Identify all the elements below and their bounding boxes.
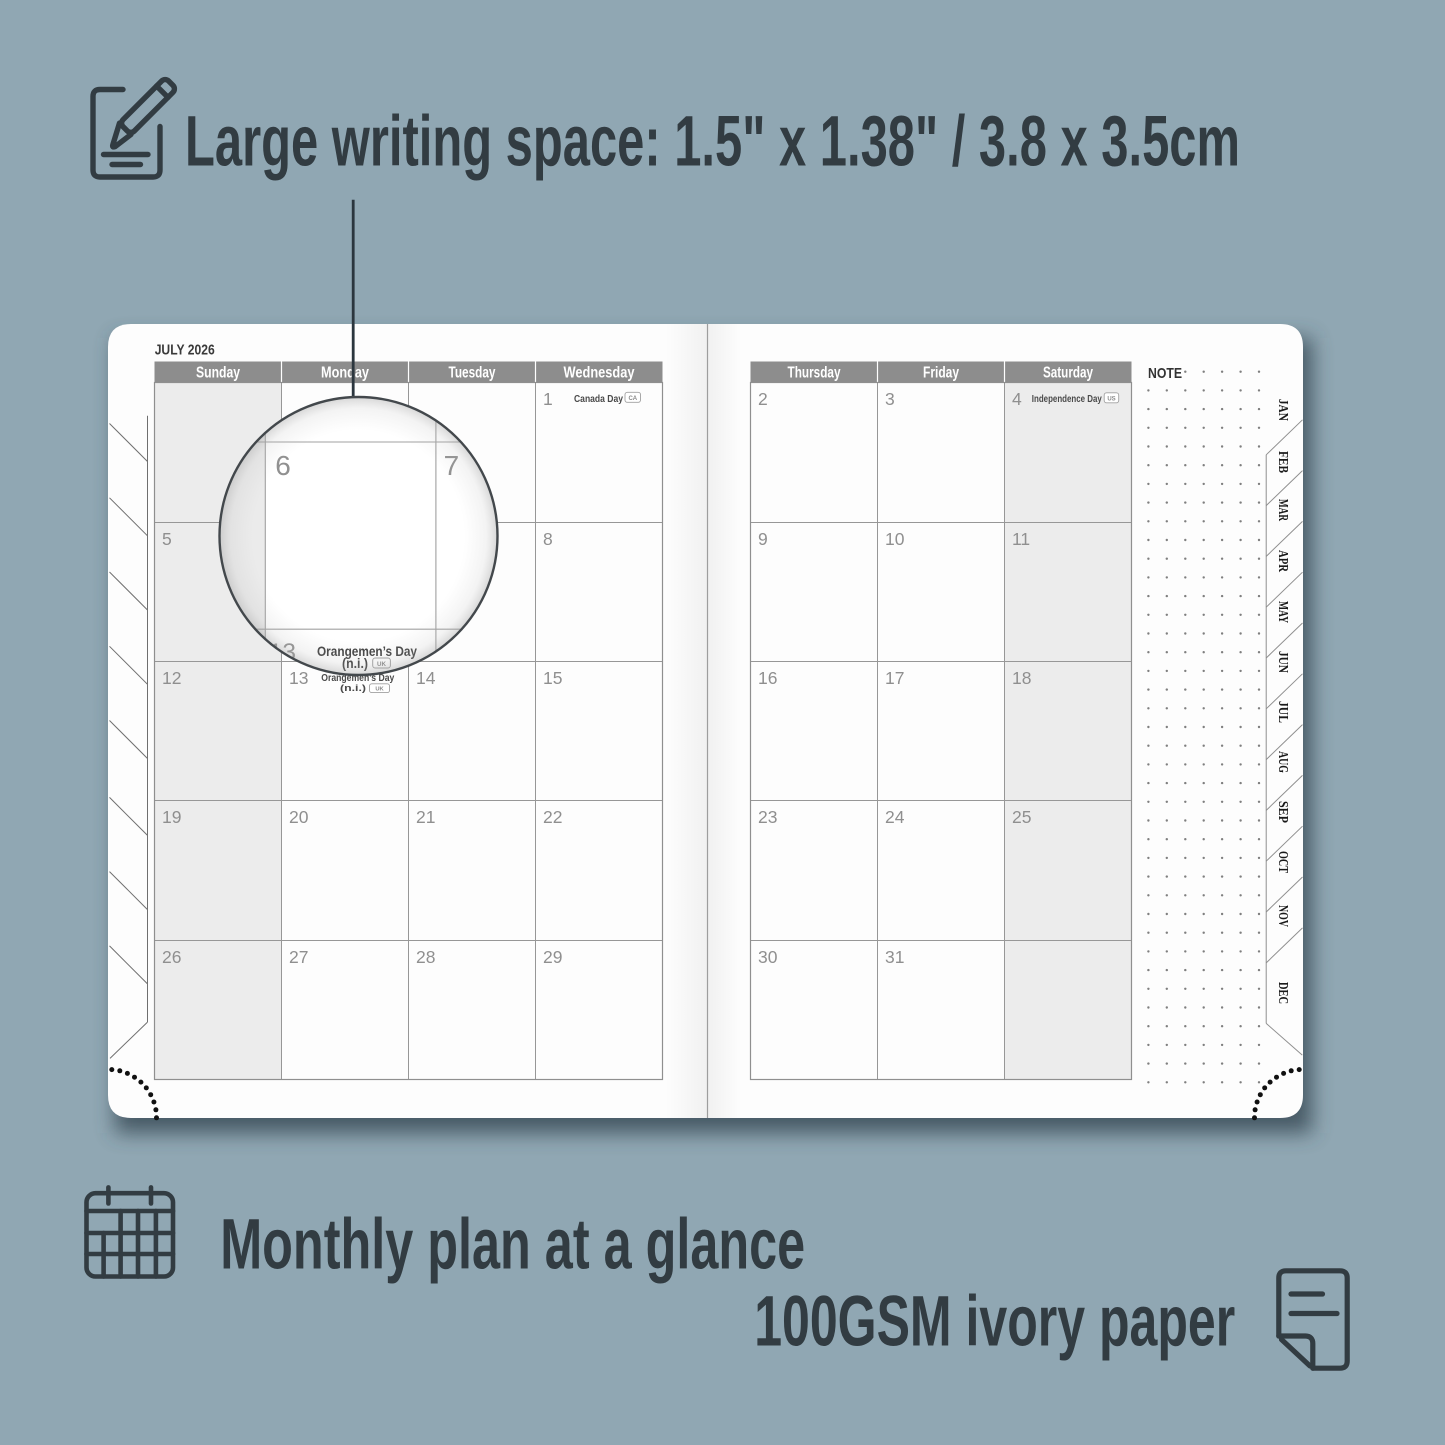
svg-text:JULY 2026: JULY 2026 [155,342,215,359]
svg-text:Thursday: Thursday [788,365,841,382]
svg-text:CA: CA [628,396,637,402]
svg-text:29: 29 [543,947,562,967]
svg-text:8: 8 [543,529,553,549]
svg-text:Friday: Friday [923,365,959,382]
svg-text:2: 2 [758,389,768,409]
svg-text:11: 11 [1012,529,1030,549]
svg-text:21: 21 [416,807,435,827]
svg-text:AUG: AUG [1275,751,1290,773]
svg-text:13: 13 [289,668,308,688]
svg-text:31: 31 [885,947,904,967]
svg-text:Tuesday: Tuesday [449,365,496,382]
svg-text:25: 25 [1012,807,1031,827]
svg-text:30: 30 [758,947,778,967]
svg-text:3: 3 [885,389,895,409]
svg-text:16: 16 [758,668,777,688]
svg-text:20: 20 [289,807,309,827]
svg-text:(n.i.): (n.i.) [340,683,366,694]
svg-text:24: 24 [885,807,905,827]
svg-text:4: 4 [1012,389,1022,409]
svg-text:FEB: FEB [1275,451,1290,473]
svg-text:100GSM ivory paper: 100GSM ivory paper [754,1283,1235,1362]
svg-text:SEP: SEP [1275,801,1290,823]
svg-text:19: 19 [162,807,181,827]
svg-text:Monthly plan at a glance: Monthly plan at a glance [220,1206,805,1285]
svg-text:18: 18 [1012,668,1031,688]
svg-text:MAY: MAY [1275,601,1290,623]
svg-text:27: 27 [289,947,308,967]
svg-text:JUL: JUL [1275,701,1290,723]
svg-text:28: 28 [416,947,435,967]
svg-text:US: US [1107,397,1115,403]
svg-text:UK: UK [375,687,384,693]
svg-text:APR: APR [1275,550,1290,573]
svg-text:JAN: JAN [1275,399,1290,421]
svg-text:17: 17 [885,668,904,688]
svg-text:MAR: MAR [1275,499,1290,522]
svg-text:1: 1 [543,389,553,409]
svg-text:22: 22 [543,807,562,827]
svg-text:OCT: OCT [1275,851,1290,873]
svg-text:Independence Day: Independence Day [1032,393,1102,405]
svg-text:5: 5 [162,529,172,549]
svg-text:26: 26 [162,947,181,967]
svg-text:9: 9 [758,529,768,549]
svg-text:15: 15 [543,668,562,688]
svg-text:JUN: JUN [1275,651,1290,673]
svg-text:14: 14 [416,668,436,688]
svg-text:23: 23 [758,807,777,827]
svg-text:Monday: Monday [321,365,369,382]
svg-text:NOTE: NOTE [1148,365,1182,382]
svg-text:Saturday: Saturday [1043,365,1093,382]
svg-text:10: 10 [885,529,905,549]
svg-text:NOV: NOV [1275,905,1290,927]
svg-text:DEC: DEC [1275,982,1290,1004]
svg-text:Sunday: Sunday [196,365,240,382]
svg-text:Large writing space: 1.5" x 1.: Large writing space: 1.5" x 1.38" / 3.8 … [185,102,1240,181]
svg-text:Canada Day: Canada Day [574,393,623,405]
svg-text:Wednesday: Wednesday [564,365,635,382]
svg-text:12: 12 [162,668,181,688]
